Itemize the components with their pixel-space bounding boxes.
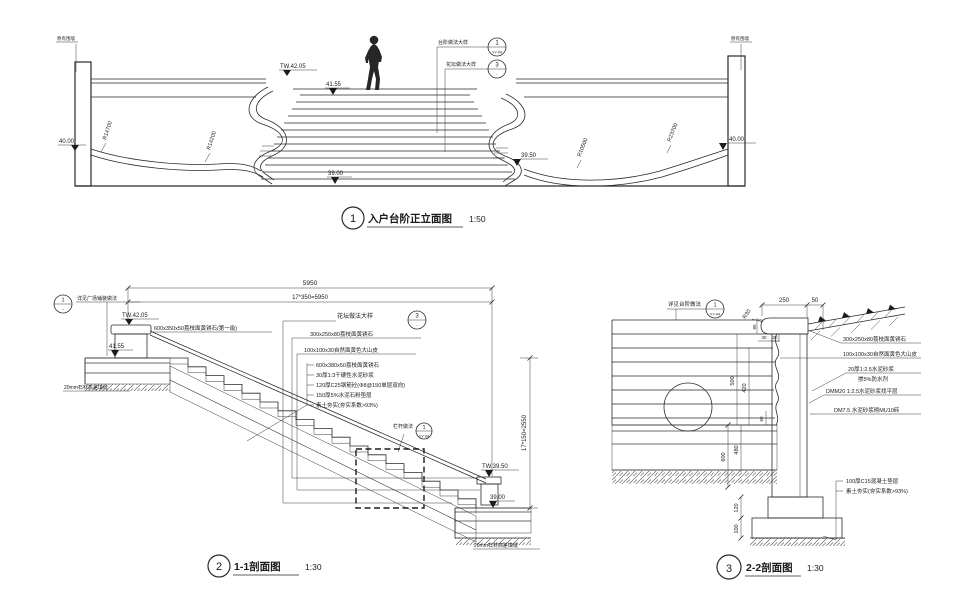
callout-s22-ref: YY-04 [710, 313, 720, 317]
dim-30: 30 [761, 335, 767, 340]
s11-level-tw3950: TW.39.50 [482, 464, 508, 470]
note-cushion: 100厚C15混凝土垫层 [846, 477, 899, 485]
layer-note-1: 30厚1:3干硬性水泥砂浆 [316, 371, 374, 379]
title-3-text: 2-2剖面图 [746, 561, 793, 574]
note-first-step: 600x350x50荔枝面黄锈石(第一级) [154, 324, 237, 332]
s11-dimensions-top: 5950 17*350=5950 [126, 280, 495, 476]
level-tw4205: TW.42.05 [280, 64, 306, 70]
callout-paving-ref: - [62, 307, 64, 313]
s11-dimension-height: 17*150=2550 [520, 356, 538, 511]
note-joint-top: 20mm石材高差填缝 [64, 384, 108, 391]
elevation-steps [261, 89, 515, 179]
s11-bottom-landing [455, 508, 531, 545]
callout-planter2-label: 花坛做法大样 [337, 312, 373, 320]
dim-height: 17*150=2550 [522, 414, 528, 451]
title-1-scale: 1:50 [469, 214, 486, 224]
s11-callout-railing: 栏杆做法 1 YY-04 [393, 423, 432, 452]
callout-planter-ref: - [496, 72, 498, 77]
callout-paving-label: 详见广场铺装做法 [77, 295, 117, 302]
s11-level-tw4205: TW.42.05 [122, 313, 148, 319]
stair-structure-band [170, 366, 476, 530]
first-step-cap-stone [111, 325, 151, 334]
dim-420: 420 [742, 383, 748, 392]
callout-railing-ref: YY-04 [419, 435, 429, 439]
drawing-canvas: 原有围墙 原有围墙 TW.42.05 41.55 39.00 40.00 [0, 0, 960, 600]
dim-r30: R30 [742, 309, 753, 321]
radius-r14200: R14200 [206, 131, 218, 151]
concrete-footing [752, 518, 842, 538]
level-3950: 39.50 [521, 153, 537, 159]
left-wall [75, 62, 91, 186]
note-rock-11: 100x100x30自然面黄色大山皮 [304, 346, 378, 354]
stair-zigzag [170, 358, 476, 508]
note-leveling: DMM20 1:2.5水泥砂浆找平层 [826, 387, 898, 395]
person-figure [365, 36, 382, 90]
radius-r23700: R23700 [667, 123, 680, 143]
callout-paving-num: 1 [61, 298, 64, 304]
title-2-text: 1-1剖面图 [234, 560, 281, 573]
s11-layer-notes: 600x380x50荔枝面黄锈石 30厚1:3干硬性水泥砂浆 120厚C25钢筋… [247, 361, 405, 441]
callout-planter2-num: 3 [415, 314, 419, 320]
note-coping-22: 300x250x80荔枝面黄锈石 [843, 335, 906, 343]
dim-60: 60 [759, 416, 764, 422]
s22-ground-layers [612, 425, 777, 484]
elevation-level-marks: TW.42.05 41.55 39.00 40.00 40.00 39.50 [58, 64, 756, 184]
callout-s22-num: 1 [713, 303, 716, 309]
callout-planter2-ref: - [416, 323, 418, 328]
level-4000-left: 40.00 [59, 139, 75, 145]
layer-note-0: 600x380x50荔枝面黄锈石 [316, 361, 379, 369]
callout-railing-num: 1 [422, 425, 425, 431]
dim-600: 600 [721, 452, 727, 461]
layer-note-3: 150厚5%水泥石粉垫层 [316, 391, 372, 399]
title-3-scale: 1:30 [807, 563, 824, 573]
title-2-num: 2 [216, 561, 222, 573]
title-1-text: 入户台阶正立面图 [368, 212, 452, 225]
elevation-title: 1 入户台阶正立面图 1:50 [342, 207, 486, 229]
layer-note-2: 120厚C25钢筋砼(Φ8@150单层双向) [316, 381, 405, 389]
s22-sloped-ground [808, 305, 905, 340]
radius-r14700: R14700 [102, 121, 114, 141]
left-volute [249, 87, 287, 184]
callout-railing-label: 栏杆做法 [393, 423, 413, 430]
s22-material-notes: 300x250x80荔枝面黄锈石 100x100x30自然面黄色大山皮 20厚1… [780, 331, 921, 540]
level-4155: 41.55 [326, 82, 342, 88]
title-2-scale: 1:30 [305, 562, 322, 572]
dim-120: 120 [734, 503, 740, 512]
dim-250: 250 [779, 298, 790, 304]
callout-planter-num: 3 [495, 63, 499, 69]
s22-callout-step: 详见台阶做法 1 YY-04 [667, 300, 724, 320]
elevation-callout-planter: 花坛做法大样 3 - [445, 60, 506, 152]
planter-coping-stone [761, 318, 808, 334]
left-curved-wall-top [91, 149, 261, 171]
s22-title: 3 2-2剖面图 1:30 [717, 555, 824, 579]
rough-stone-face [775, 334, 778, 425]
elevation-drawing: 原有围墙 原有围墙 TW.42.05 41.55 39.00 40.00 [56, 35, 756, 229]
s11-callout-paving: 1 - 详见广场铺装做法 [54, 295, 140, 356]
s11-level-3900: 39.00 [490, 495, 506, 501]
title-3-num: 3 [726, 563, 732, 575]
footing-soil [750, 538, 845, 546]
note-mortar-2: 掺5%防水剂 [858, 375, 888, 383]
dim-80: 80 [752, 324, 757, 330]
wall-base-block [768, 497, 823, 518]
section-2-2-drawing: 详见台阶做法 1 YY-04 250 50 R30 80 30 20 500 4… [612, 298, 921, 579]
dim-100: 100 [734, 524, 740, 533]
radius-r10500: R10500 [577, 138, 590, 158]
layer-note-4: 素土夯实(夯实系数>93%) [316, 401, 378, 409]
dim-500: 500 [730, 376, 736, 385]
note-mortar-1: 20厚1:2.5水泥砂浆 [848, 365, 894, 373]
callout-planter-label: 花坛做法大样 [446, 61, 476, 68]
callout-step-label: 台阶做法大样 [438, 39, 468, 46]
s11-title: 2 1-1剖面图 1:30 [208, 555, 322, 577]
title-1-num: 1 [350, 213, 356, 225]
left-railing-lines [91, 79, 266, 97]
wall-label-right: 原有围墙 [731, 35, 749, 42]
dim-total: 5950 [303, 280, 318, 287]
note-rock-22: 100x100x30自然面黄色大山皮 [843, 350, 917, 358]
s22-step-lines [612, 320, 775, 425]
right-curved-wall-top [524, 149, 728, 180]
right-wall [728, 56, 745, 186]
cad-sheet: 原有围墙 原有围墙 TW.42.05 41.55 39.00 40.00 [0, 0, 960, 600]
right-curved-wall-bottom [524, 155, 728, 186]
dim-20: 20 [772, 335, 778, 340]
note-joint-bottom: 20mm石材高差填缝 [474, 542, 518, 549]
section-1-1-drawing: 5950 17*350=5950 1 - 详见广场铺装做法 TW.42.05 6… [54, 280, 540, 577]
level-3900: 39.00 [328, 171, 344, 177]
left-curved-wall-bottom [91, 155, 263, 177]
note-brick: DM7.5 水泥砂浆砌MU10砖 [834, 406, 900, 414]
dim-480: 480 [734, 445, 740, 454]
dim-treads: 17*350=5950 [292, 295, 329, 301]
wall-label-left: 原有围墙 [57, 35, 75, 42]
note-coping-11: 300x250x80荔枝面黄锈石 [310, 330, 373, 338]
callout-step-num: 1 [495, 41, 499, 47]
callout-s22-label: 详见台阶做法 [668, 300, 702, 308]
callout-step-ref: YY-04 [492, 51, 502, 55]
right-railing-lines [516, 79, 728, 97]
s11-level-4155: 41.55 [109, 344, 125, 350]
dim-50: 50 [812, 298, 819, 304]
elevation-callout-step: 台阶做法大样 1 YY-04 [437, 38, 506, 133]
level-4000-right: 40.00 [729, 137, 745, 143]
note-soil: 素土夯实(夯实系数>93%) [846, 487, 908, 495]
